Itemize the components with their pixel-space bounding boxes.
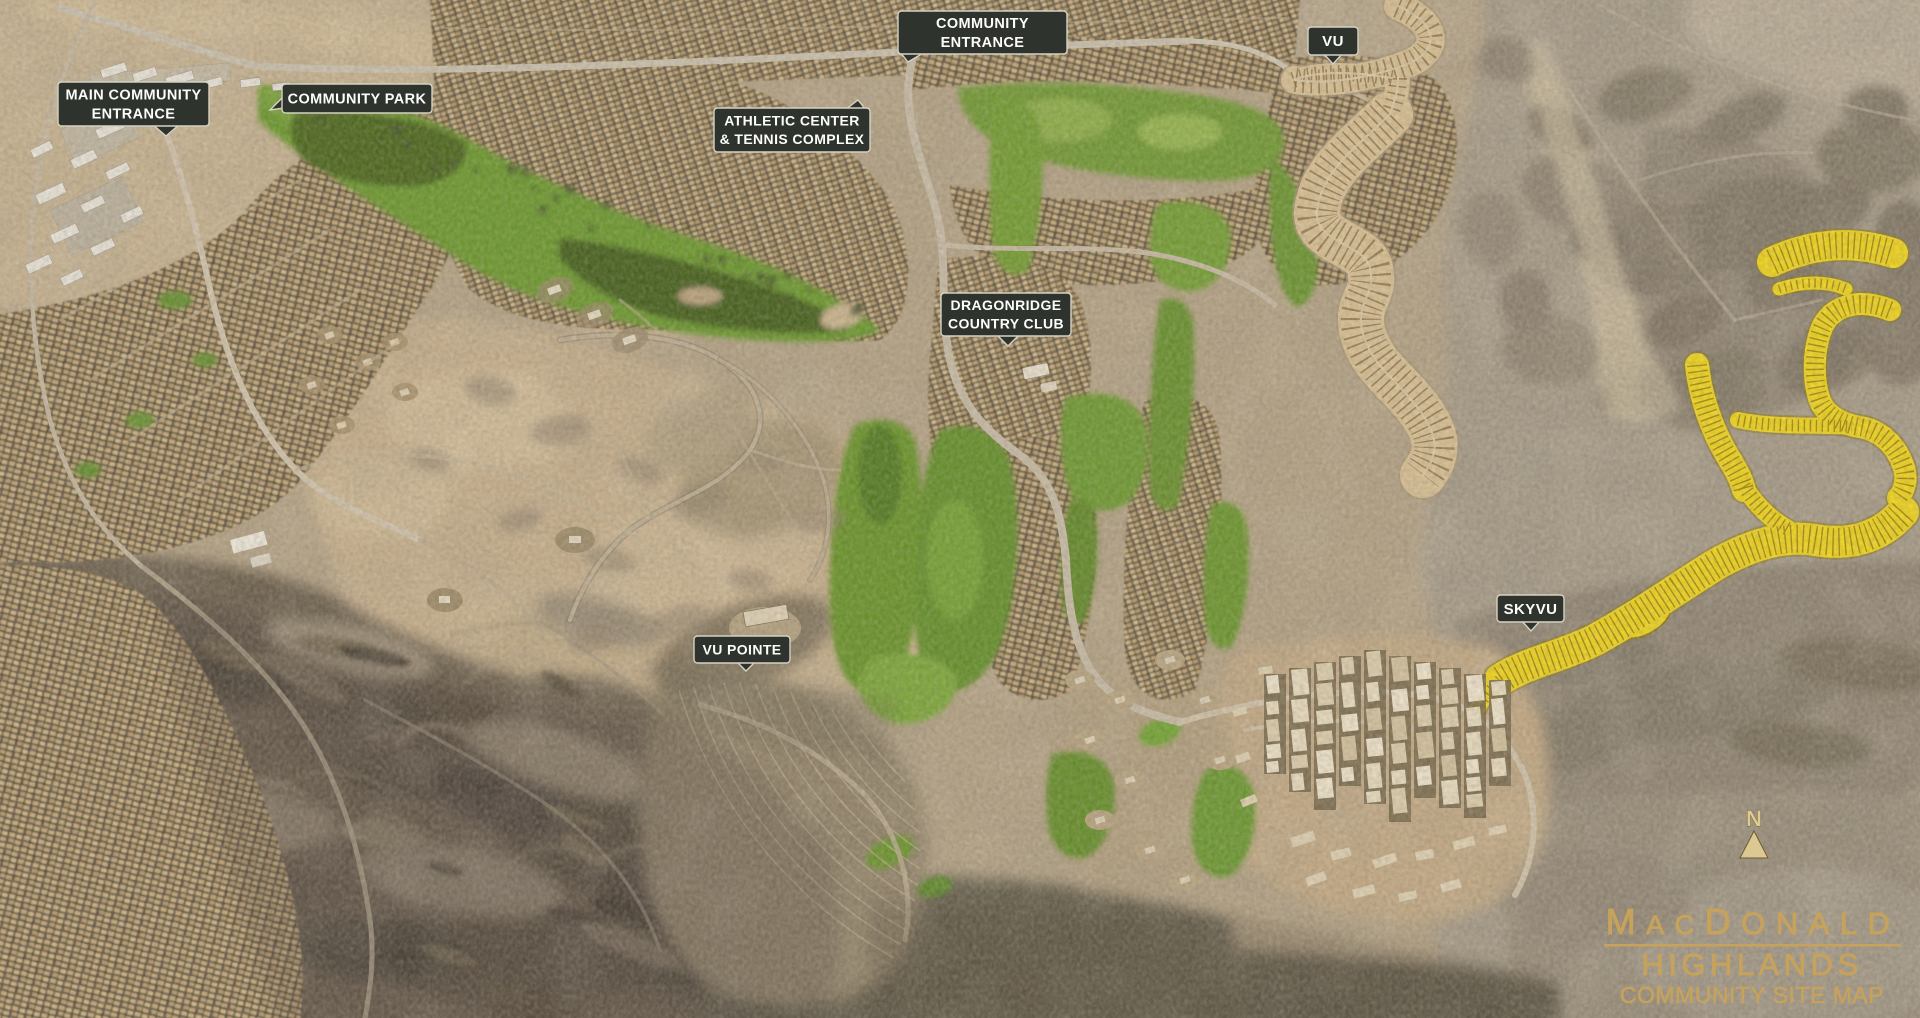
svg-text:COMMUNITY PARK: COMMUNITY PARK xyxy=(288,92,427,108)
svg-text:COMMUNITY: COMMUNITY xyxy=(936,16,1029,32)
svg-text:VU: VU xyxy=(1322,33,1344,50)
svg-text:DRAGONRIDGE: DRAGONRIDGE xyxy=(951,297,1062,313)
svg-text:MAIN COMMUNITY: MAIN COMMUNITY xyxy=(65,88,201,104)
svg-text:VU POINTE: VU POINTE xyxy=(702,641,781,657)
svg-text:ENTRANCE: ENTRANCE xyxy=(941,35,1025,51)
svg-text:ATHLETIC CENTER: ATHLETIC CENTER xyxy=(724,113,860,129)
svg-text:HIGHLANDS: HIGHLANDS xyxy=(1641,947,1862,982)
svg-text:N: N xyxy=(1746,806,1762,831)
svg-text:ENTRANCE: ENTRANCE xyxy=(92,107,176,123)
svg-text:COMMUNITY SITE MAP: COMMUNITY SITE MAP xyxy=(1620,982,1884,1008)
svg-text:SKYVU: SKYVU xyxy=(1504,601,1558,618)
svg-text:& TENNIS COMPLEX: & TENNIS COMPLEX xyxy=(720,131,865,147)
svg-text:COUNTRY CLUB: COUNTRY CLUB xyxy=(948,316,1064,332)
